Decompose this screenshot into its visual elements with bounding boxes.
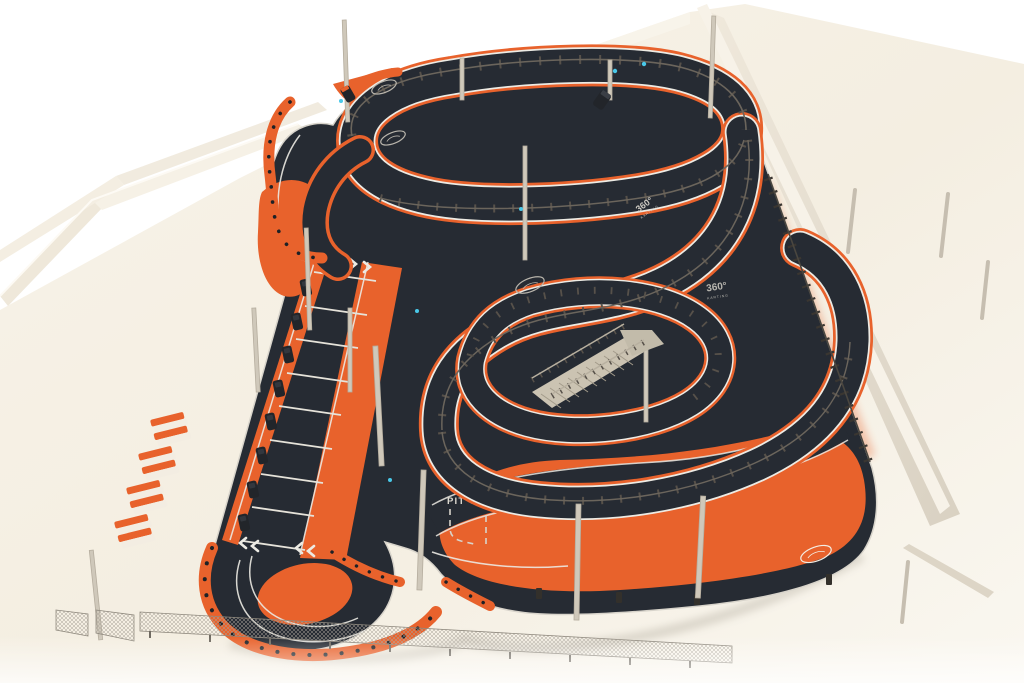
karting-track-render: PIT OUT bbox=[0, 0, 1024, 683]
bottom-fade bbox=[0, 636, 1024, 683]
track-logo-2: 360° KARTING bbox=[705, 281, 729, 301]
render-canvas: PIT OUT bbox=[0, 0, 1024, 683]
